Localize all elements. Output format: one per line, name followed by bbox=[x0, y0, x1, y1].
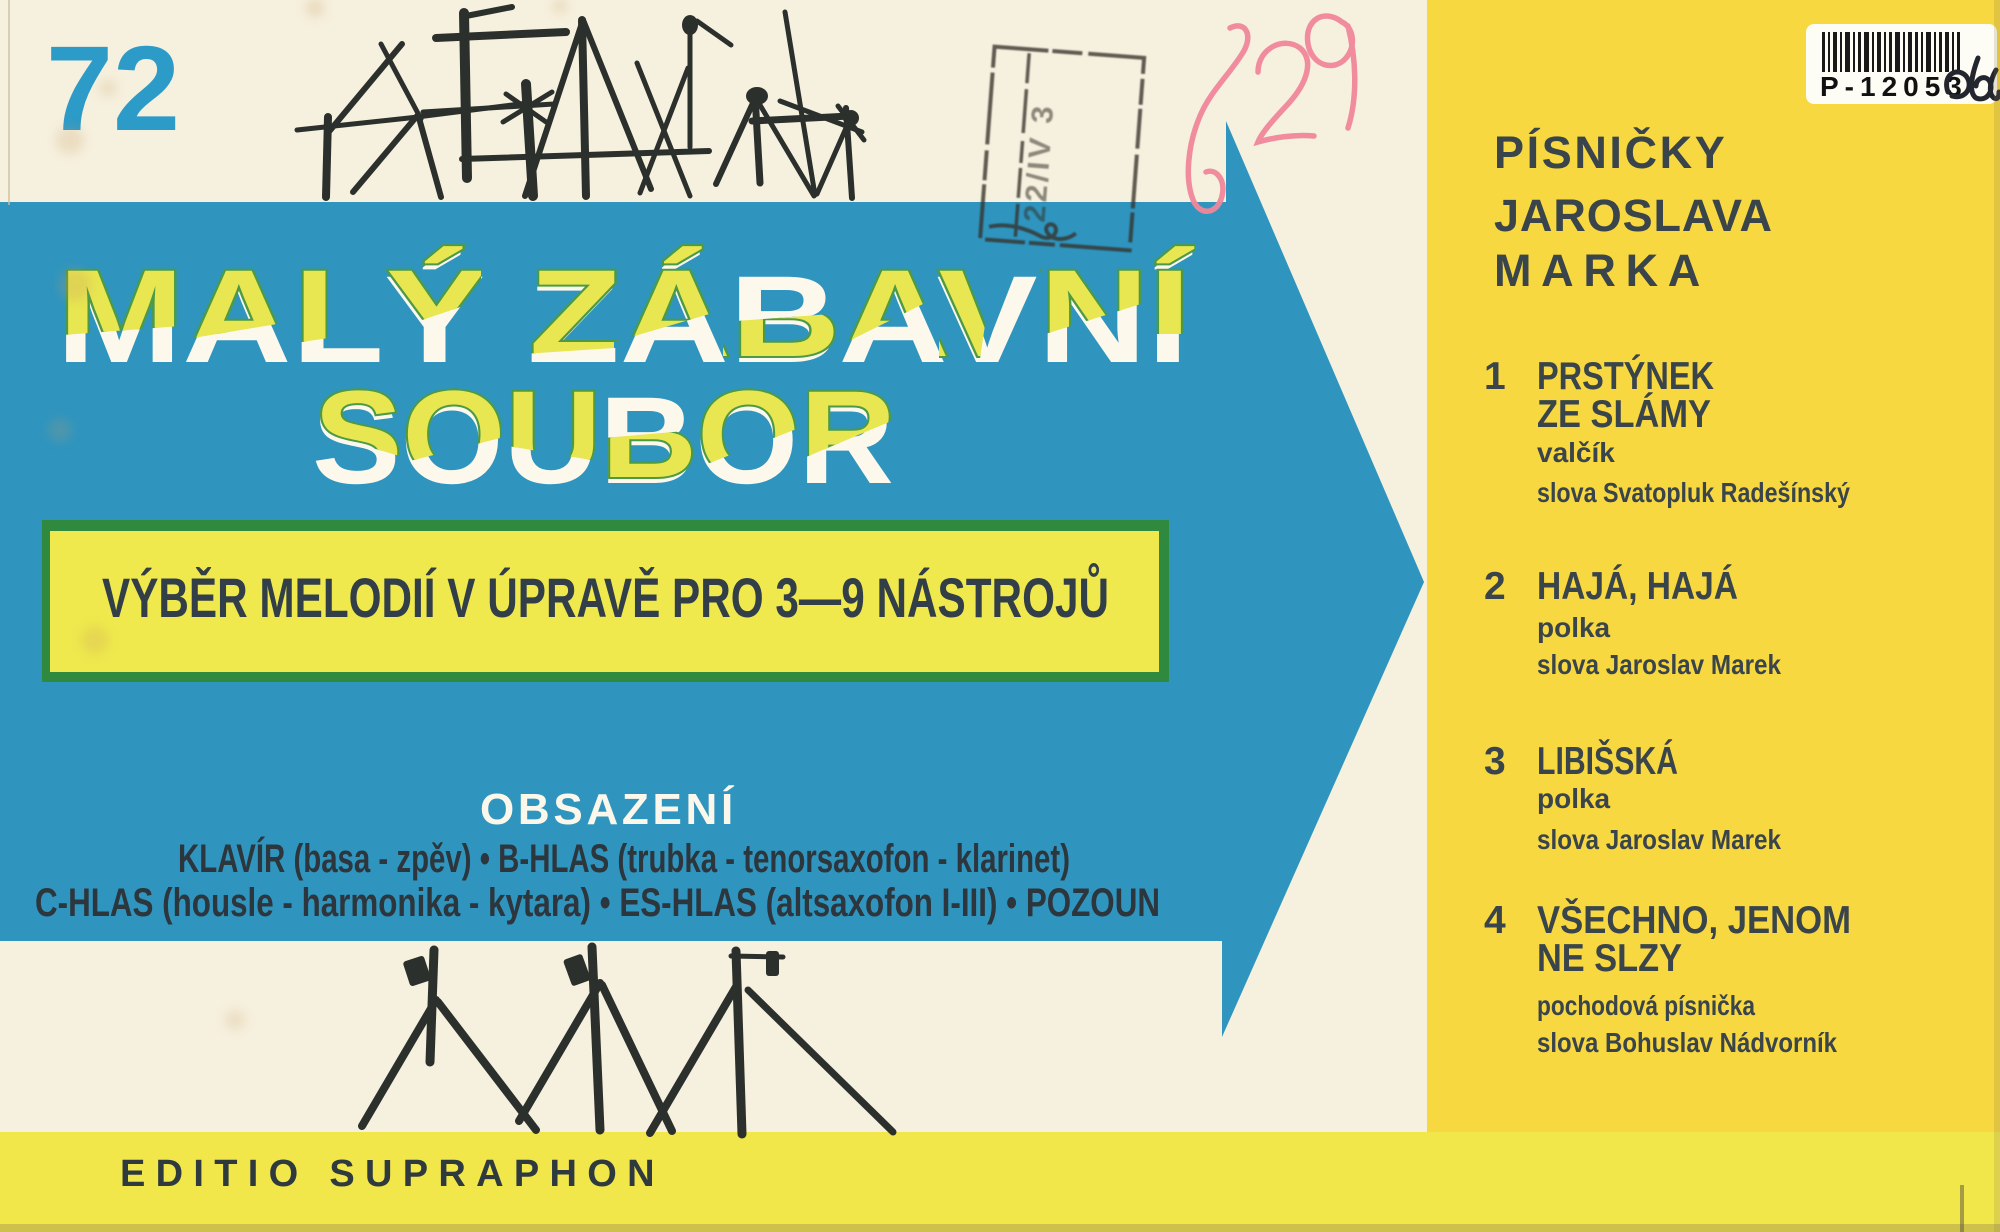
svg-text:KLAVÍR (basa - zpěv) • B-HLAS: KLAVÍR (basa - zpěv) • B-HLAS (trubka - … bbox=[178, 836, 1070, 881]
svg-text:MARKA: MARKA bbox=[1494, 245, 1710, 296]
svg-text:polka: polka bbox=[1537, 783, 1611, 814]
svg-text:3: 3 bbox=[1484, 740, 1506, 783]
svg-text:2: 2 bbox=[1484, 565, 1506, 608]
svg-text:slova Bohuslav Nádvorník: slova Bohuslav Nádvorník bbox=[1537, 1027, 1837, 1058]
svg-text:1: 1 bbox=[1484, 355, 1506, 398]
svg-text:VŠECHNO, JENOM: VŠECHNO, JENOM bbox=[1537, 897, 1851, 942]
svg-text:VÝBĚR MELODIÍ V ÚPRAVĚ PRO 3—9: VÝBĚR MELODIÍ V ÚPRAVĚ PRO 3—9 NÁSTROJŮ bbox=[102, 563, 1109, 629]
svg-text:ZE SLÁMY: ZE SLÁMY bbox=[1537, 392, 1711, 436]
svg-text:slova Jaroslav Marek: slova Jaroslav Marek bbox=[1537, 824, 1781, 855]
svg-text:polka: polka bbox=[1537, 612, 1611, 643]
svg-text:HAJÁ, HAJÁ: HAJÁ, HAJÁ bbox=[1537, 564, 1738, 608]
svg-text:slova Svatopluk Radešínský: slova Svatopluk Radešínský bbox=[1537, 477, 1850, 508]
svg-text:C-HLAS (housle - harmonika - k: C-HLAS (housle - harmonika - kytara) • E… bbox=[35, 881, 1160, 925]
svg-text:slova Jaroslav Marek: slova Jaroslav Marek bbox=[1537, 649, 1781, 680]
svg-text:valčík: valčík bbox=[1537, 437, 1615, 468]
svg-text:4: 4 bbox=[1484, 899, 1506, 942]
svg-text:NE SLZY: NE SLZY bbox=[1537, 937, 1682, 980]
svg-text:OBSAZENÍ: OBSAZENÍ bbox=[480, 784, 737, 834]
svg-text:pochodová písnička: pochodová písnička bbox=[1537, 990, 1755, 1021]
svg-text:EDITIO SUPRAPHON: EDITIO SUPRAPHON bbox=[120, 1153, 665, 1195]
svg-text:LIBIŠSKÁ: LIBIŠSKÁ bbox=[1537, 738, 1678, 783]
svg-text:JAROSLAVA: JAROSLAVA bbox=[1494, 190, 1773, 241]
svg-text:PRSTÝNEK: PRSTÝNEK bbox=[1537, 354, 1714, 398]
svg-text:PÍSNIČKY: PÍSNIČKY bbox=[1494, 127, 1727, 178]
